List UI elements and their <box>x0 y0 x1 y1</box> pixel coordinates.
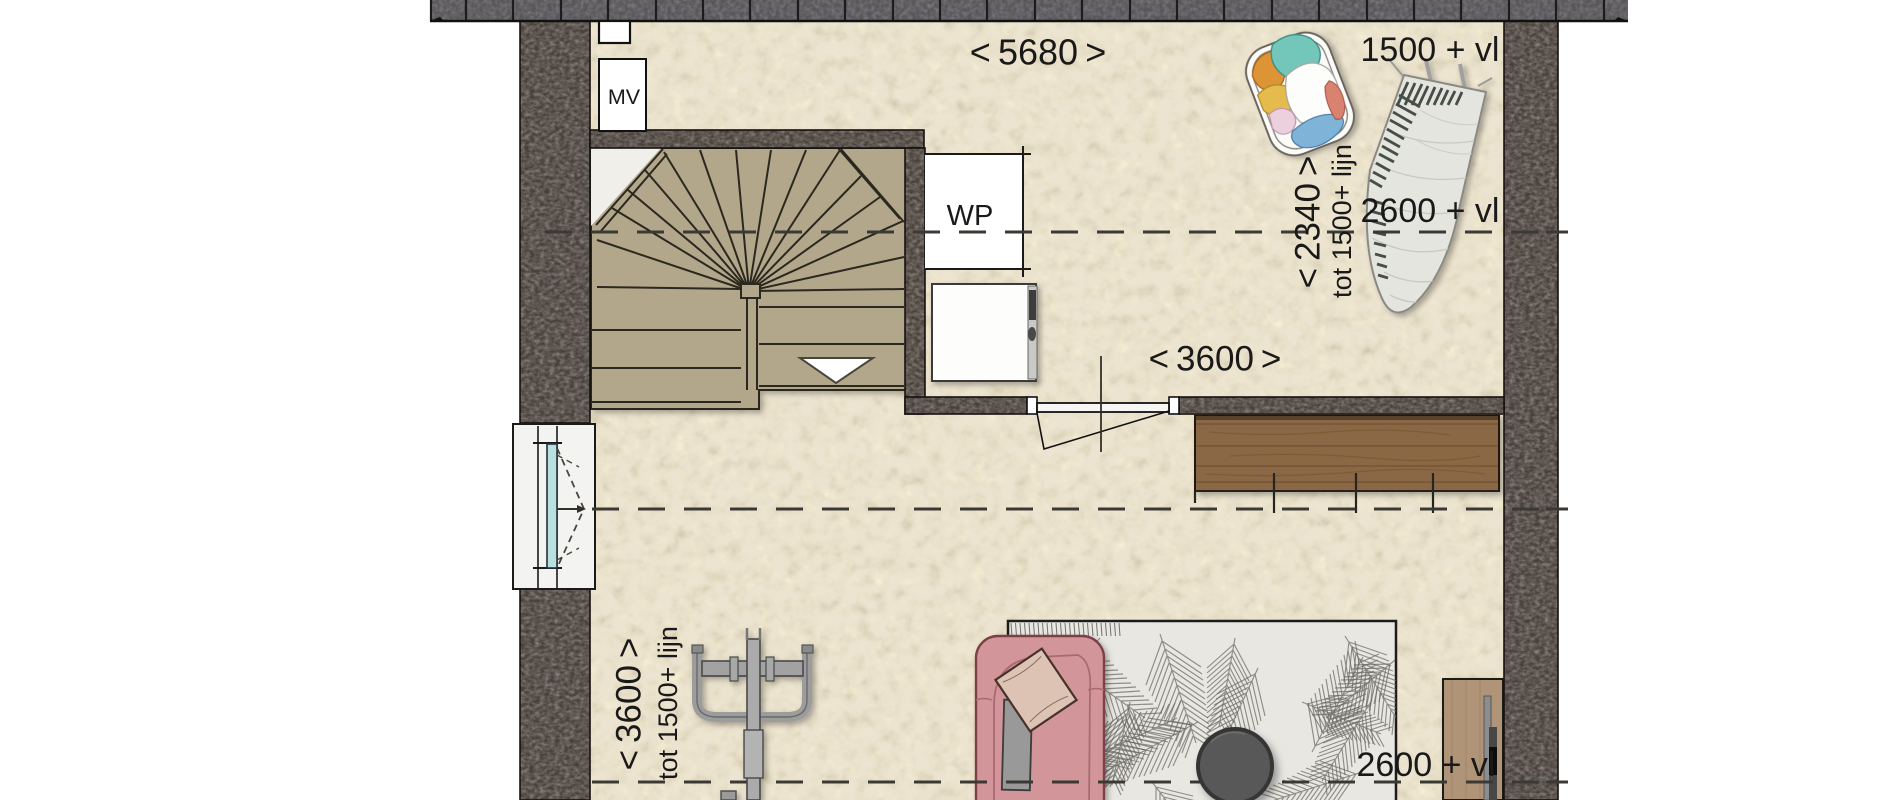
svg-text:tot 1500+ lijn: tot 1500+ lijn <box>653 626 683 780</box>
svg-text:WP: WP <box>947 200 994 232</box>
svg-text:1500 + vl: 1500 + vl <box>1361 31 1500 69</box>
svg-text:MV: MV <box>608 85 641 109</box>
svg-text:< 2340 >: < 2340 > <box>1289 156 1328 289</box>
svg-text:< 3600 >: < 3600 > <box>1149 340 1282 379</box>
svg-text:tot 1500+ lijn: tot 1500+ lijn <box>1327 144 1357 298</box>
svg-text:2600 + vl: 2600 + vl <box>1361 192 1500 230</box>
svg-text:< 5680 >: < 5680 > <box>970 32 1107 73</box>
svg-text:< 3600 >: < 3600 > <box>610 638 649 771</box>
svg-text:2600 + vl: 2600 + vl <box>1357 746 1496 784</box>
